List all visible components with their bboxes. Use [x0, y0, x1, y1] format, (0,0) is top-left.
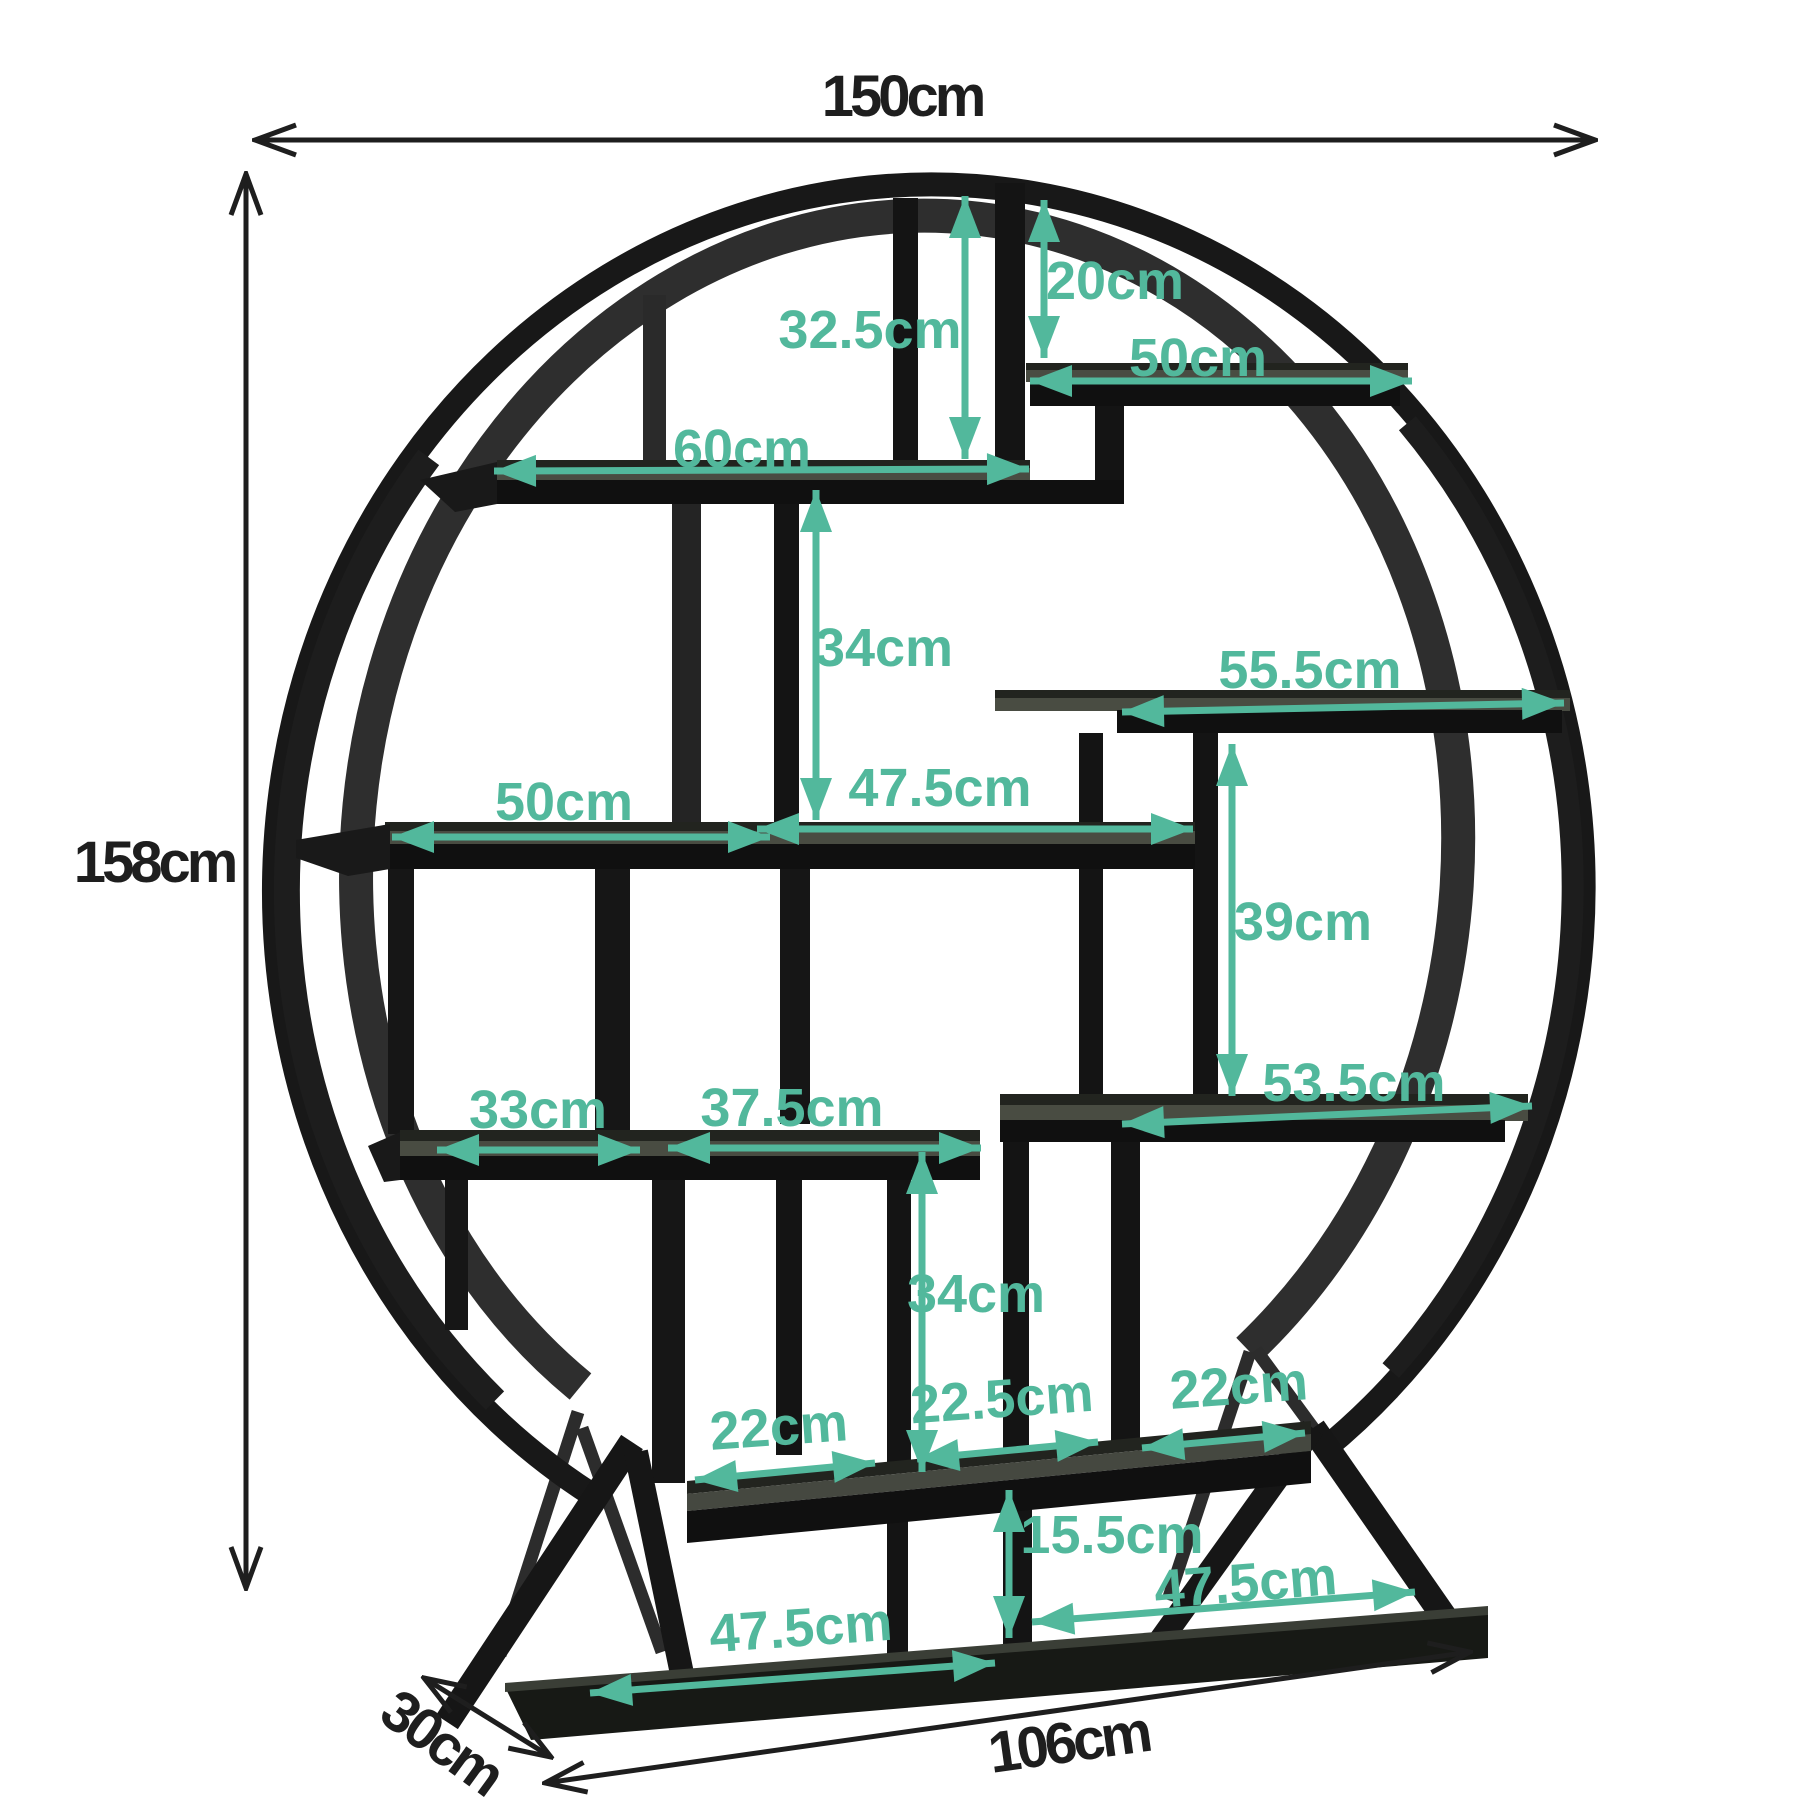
svg-text:33cm: 33cm — [469, 1080, 607, 1140]
svg-text:55.5cm: 55.5cm — [1218, 640, 1401, 700]
svg-text:30cm: 30cm — [369, 1677, 515, 1800]
svg-text:22cm: 22cm — [1168, 1351, 1310, 1420]
svg-text:39cm: 39cm — [1234, 892, 1372, 952]
svg-text:32.5cm: 32.5cm — [778, 300, 961, 360]
svg-text:50cm: 50cm — [495, 772, 633, 832]
svg-text:150cm: 150cm — [822, 64, 983, 129]
svg-text:60cm: 60cm — [673, 419, 811, 479]
svg-text:22.5cm: 22.5cm — [908, 1363, 1095, 1436]
svg-text:158cm: 158cm — [74, 830, 235, 895]
svg-text:34cm: 34cm — [907, 1264, 1045, 1324]
svg-text:20cm: 20cm — [1046, 251, 1184, 311]
svg-text:50cm: 50cm — [1129, 328, 1267, 388]
svg-text:34cm: 34cm — [815, 618, 953, 678]
svg-text:22cm: 22cm — [708, 1392, 850, 1461]
svg-text:53.5cm: 53.5cm — [1262, 1053, 1445, 1113]
svg-text:106cm: 106cm — [984, 1699, 1153, 1786]
svg-text:47.5cm: 47.5cm — [848, 758, 1031, 818]
svg-text:15.5cm: 15.5cm — [1020, 1505, 1203, 1565]
svg-text:37.5cm: 37.5cm — [700, 1078, 883, 1138]
svg-text:47.5cm: 47.5cm — [707, 1592, 894, 1665]
